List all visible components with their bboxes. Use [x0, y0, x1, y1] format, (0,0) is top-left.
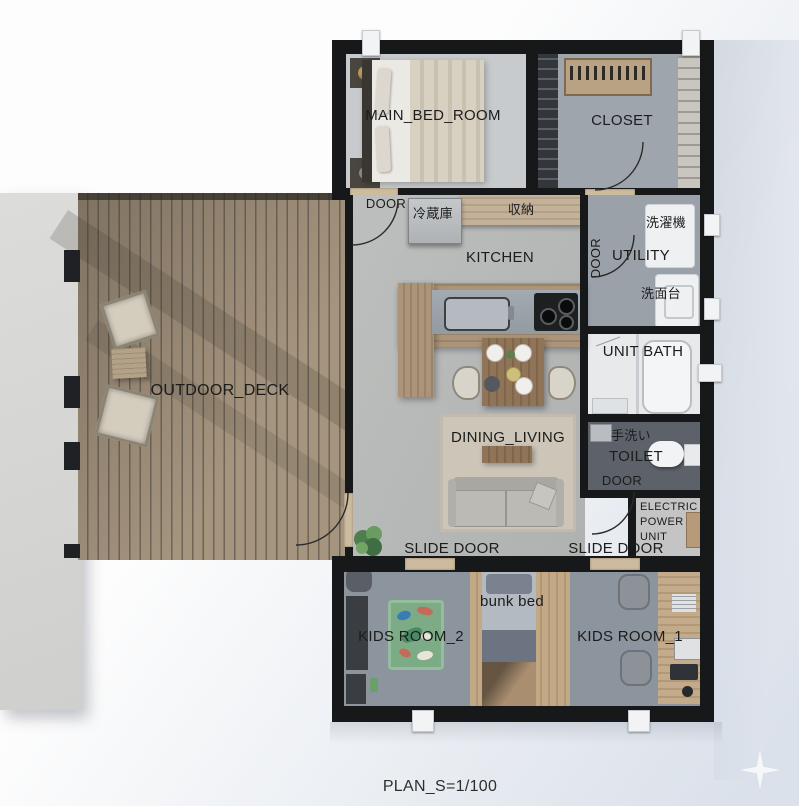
plate-dark — [484, 376, 500, 392]
deck-edge-post — [64, 442, 80, 470]
plate — [486, 344, 504, 362]
main-bedroom-label: MAIN_BED_ROOM — [353, 108, 513, 125]
wall-tie — [704, 214, 720, 236]
sofa-armrest — [556, 479, 564, 527]
bunk-bed-label: bunk bed — [462, 594, 562, 611]
wall-kids-left — [332, 564, 344, 714]
deck-edge-post — [64, 376, 80, 408]
wall-bedroom-closet — [526, 50, 538, 196]
kitchen-sink — [444, 297, 510, 331]
kitchen-counter — [432, 290, 580, 334]
dining-chair — [548, 366, 576, 400]
kids1-books — [672, 594, 696, 612]
burner — [558, 298, 575, 315]
kids-room-1-label: KIDS ROOM_1 — [560, 629, 700, 646]
outdoor-deck-label: OUTDOOR_DECK — [120, 382, 320, 400]
washing-machine-label: 洗濯機 — [621, 216, 711, 230]
dining-living-label: DINING_LIVING — [428, 430, 588, 447]
utility-label: UTILITY — [596, 248, 686, 265]
wall-tie — [412, 710, 434, 732]
bunk-bed-mattress — [482, 568, 536, 662]
wall-utility-bath — [580, 326, 714, 334]
potted-plant — [352, 524, 388, 560]
deck-edge-post — [64, 544, 80, 558]
wall-power-unit — [628, 492, 636, 562]
sofa — [448, 477, 564, 529]
dining-chair — [452, 366, 480, 400]
wall-toilet-hall — [580, 490, 714, 498]
sofa-cushion — [454, 490, 506, 527]
kids1-laptop — [670, 664, 698, 680]
kids2-cabinet — [346, 674, 366, 704]
slide-door-opening-right — [590, 558, 640, 570]
stove — [534, 293, 578, 331]
burner — [540, 308, 557, 325]
wall-top — [332, 40, 714, 54]
house-cast-shadow — [714, 40, 799, 780]
wall-bath-toilet — [580, 414, 714, 422]
kids-room-2-label: KIDS ROOM_2 — [341, 629, 481, 646]
kids2-toy — [370, 678, 378, 692]
plate — [515, 377, 533, 395]
wall-kids-top — [332, 556, 714, 572]
washbasin-label: 洗面台 — [616, 287, 706, 301]
closet-label: CLOSET — [562, 113, 682, 130]
wall-kitchen-utility — [580, 195, 588, 497]
toilet-label: TOILET — [586, 449, 686, 466]
floor-plan-scene: OUTDOOR_DECK MAIN_BED_ROOM CLOSET 冷蔵庫 収納… — [0, 0, 799, 806]
wall-tie — [698, 364, 722, 382]
bunk-bed-pillow — [486, 574, 532, 594]
wall-tie — [704, 298, 720, 320]
plan-scale-label: PLAN_S=1/100 — [340, 778, 540, 796]
bath-sink — [592, 398, 628, 414]
bunk-bed-frame — [470, 564, 570, 712]
plate — [514, 344, 532, 362]
table-plant — [506, 350, 515, 359]
hangers — [570, 66, 646, 80]
slide-door-opening-left — [405, 558, 455, 570]
wall-kids-right — [700, 564, 714, 714]
utility-door-label: DOOR — [589, 234, 603, 282]
kitchen-island-wood-leg — [398, 283, 434, 397]
deck-side-table — [111, 347, 147, 379]
kids1-mug — [682, 686, 693, 697]
bunk-bed-floor — [482, 662, 536, 706]
bottom-cast-shadow — [330, 722, 722, 748]
pillow — [375, 126, 391, 173]
wall-tie — [682, 30, 700, 56]
wall-tie — [362, 30, 380, 56]
ladder-shadow — [482, 662, 536, 706]
hand-wash-label: 手洗い — [591, 429, 671, 443]
kitchen-label: KITCHEN — [440, 250, 560, 267]
wall-left — [332, 40, 346, 200]
unit-bath-label: UNIT BATH — [588, 344, 698, 361]
deck-door-leaf — [344, 493, 353, 547]
toilet-door-label: DOOR — [592, 474, 652, 488]
faucet — [508, 306, 514, 320]
sofa-armrest — [448, 479, 456, 527]
deck-edge-post — [64, 250, 80, 282]
closet-shelf-unit — [564, 58, 652, 96]
kids1-chair — [620, 650, 652, 686]
coffee-table — [482, 446, 532, 463]
bedroom-door-label: DOOR — [356, 197, 416, 211]
storage-label: 収納 — [481, 203, 561, 217]
kids1-chair — [618, 574, 650, 610]
bunk-bed-blanket — [482, 630, 536, 662]
burner — [559, 315, 574, 330]
wall-tie — [628, 710, 650, 732]
wall-kids-bottom — [332, 706, 714, 722]
wall-right — [700, 40, 714, 200]
